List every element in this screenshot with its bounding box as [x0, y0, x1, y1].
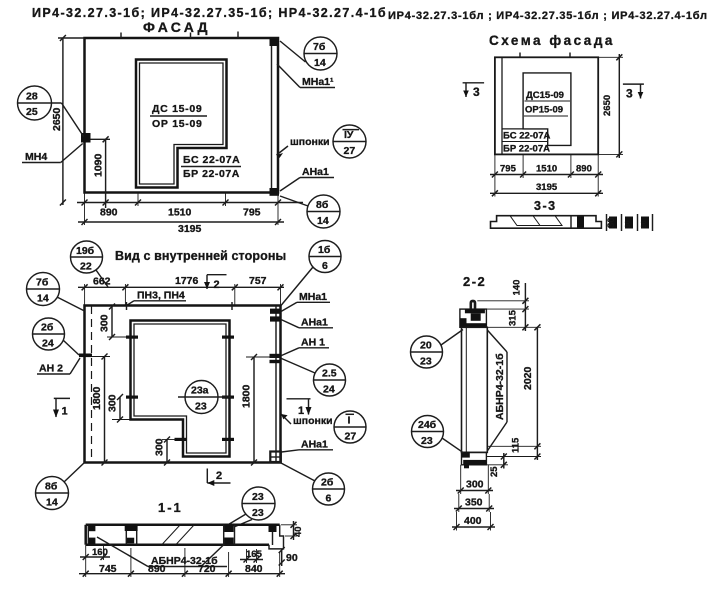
- svg-text:757: 757: [249, 275, 267, 287]
- svg-text:2б: 2б: [41, 322, 54, 334]
- svg-text:ОР15-09: ОР15-09: [525, 105, 563, 116]
- svg-text:20: 20: [420, 340, 432, 352]
- svg-text:22: 22: [80, 261, 92, 273]
- svg-text:24б: 24б: [418, 419, 437, 431]
- svg-text:1510: 1510: [536, 164, 557, 175]
- svg-text:ДС15-09: ДС15-09: [526, 90, 564, 101]
- svg-text:662: 662: [93, 276, 111, 288]
- svg-text:23а: 23а: [191, 385, 209, 397]
- svg-text:АНа1: АНа1: [301, 439, 328, 451]
- svg-text:3195: 3195: [178, 223, 202, 235]
- svg-text:АНа1: АНа1: [302, 166, 329, 178]
- svg-text:ОР 15-09: ОР 15-09: [152, 118, 203, 130]
- svg-text:25: 25: [26, 106, 38, 118]
- svg-text:3: 3: [473, 85, 480, 99]
- svg-text:19б: 19б: [76, 245, 95, 257]
- svg-text:14: 14: [46, 497, 58, 509]
- svg-text:БР 22-07А: БР 22-07А: [183, 168, 240, 180]
- svg-text:1800: 1800: [241, 384, 253, 408]
- svg-text:14: 14: [314, 57, 326, 69]
- svg-text:24: 24: [323, 384, 335, 396]
- svg-text:165: 165: [246, 549, 263, 560]
- svg-text:ДС 15-09: ДС 15-09: [152, 103, 202, 115]
- svg-text:23: 23: [421, 435, 433, 447]
- svg-text:720: 720: [198, 563, 216, 575]
- svg-text:БС 22-07А: БС 22-07А: [183, 154, 240, 166]
- svg-text:7б: 7б: [313, 41, 326, 53]
- svg-text:40: 40: [293, 526, 304, 537]
- svg-text:1090: 1090: [93, 153, 105, 177]
- svg-text:400: 400: [464, 515, 482, 527]
- svg-text:АНа1: АНа1: [301, 317, 328, 329]
- svg-text:890: 890: [576, 164, 592, 175]
- svg-text:14: 14: [37, 293, 49, 305]
- svg-text:шпонки: шпонки: [290, 136, 330, 148]
- svg-text:ИР4-32.27.3-1бл ; ИР4-32.27.35: ИР4-32.27.3-1бл ; ИР4-32.27.35-1бл ; ИР4…: [388, 10, 708, 22]
- svg-text:90: 90: [641, 220, 648, 228]
- svg-text:МНа1¹: МНа1¹: [302, 76, 334, 88]
- svg-text:30: 30: [606, 217, 617, 228]
- svg-text:3-3: 3-3: [534, 199, 557, 213]
- svg-text:890: 890: [100, 207, 118, 219]
- svg-text:27: 27: [344, 145, 356, 157]
- svg-text:3: 3: [626, 87, 633, 101]
- svg-text:1б: 1б: [318, 244, 331, 256]
- svg-text:Вид с внутренней стороны: Вид с внутренней стороны: [115, 249, 286, 263]
- svg-text:160: 160: [92, 547, 108, 558]
- svg-text:ІУ: ІУ: [344, 129, 354, 141]
- svg-text:АБНР4-32-1б: АБНР4-32-1б: [494, 353, 506, 420]
- svg-text:2б: 2б: [321, 477, 334, 489]
- svg-text:2.5: 2.5: [322, 368, 337, 380]
- svg-text:115: 115: [511, 437, 522, 453]
- svg-text:2-2: 2-2: [463, 274, 486, 289]
- svg-text:300: 300: [466, 479, 484, 491]
- svg-text:23: 23: [420, 356, 432, 368]
- svg-text:3195: 3195: [536, 182, 558, 193]
- svg-text:24: 24: [42, 338, 54, 350]
- svg-text:23: 23: [195, 401, 207, 413]
- svg-text:890: 890: [148, 563, 166, 575]
- svg-text:90: 90: [286, 552, 298, 564]
- svg-text:АН 2: АН 2: [39, 363, 63, 375]
- svg-text:795: 795: [500, 164, 517, 175]
- svg-text:2: 2: [214, 279, 220, 291]
- svg-text:350: 350: [465, 497, 483, 509]
- svg-text:шпонки: шпонки: [293, 415, 333, 427]
- svg-text:30: 30: [625, 220, 632, 228]
- svg-text:28: 28: [26, 91, 38, 103]
- svg-text:1776: 1776: [175, 275, 199, 287]
- svg-text:БР 22-07А: БР 22-07А: [503, 144, 550, 155]
- svg-text:МН4: МН4: [25, 151, 47, 163]
- svg-text:315: 315: [508, 309, 519, 326]
- svg-text:7б: 7б: [36, 277, 49, 289]
- svg-text:ИР4-32.27.3-1б; ИР4-32.27.35-: ИР4-32.27.3-1б; ИР4-32.27.35-1б; НР4-32.…: [32, 6, 387, 20]
- svg-text:14: 14: [317, 215, 329, 227]
- svg-text:27: 27: [345, 431, 357, 443]
- svg-text:2650: 2650: [602, 95, 613, 116]
- svg-text:23: 23: [252, 507, 264, 519]
- svg-text:300: 300: [99, 314, 111, 332]
- svg-text:6: 6: [322, 260, 328, 272]
- svg-text:300: 300: [107, 394, 119, 412]
- svg-text:25: 25: [489, 466, 500, 477]
- svg-text:6: 6: [326, 493, 332, 505]
- svg-text:140: 140: [512, 280, 523, 296]
- svg-text:8б: 8б: [316, 199, 329, 211]
- svg-text:І: І: [348, 415, 351, 427]
- svg-text:300: 300: [154, 438, 166, 456]
- svg-text:ФАСАД: ФАСАД: [143, 19, 211, 35]
- svg-text:БС 22-07А: БС 22-07А: [503, 131, 551, 142]
- svg-text:Схема фасада: Схема фасада: [489, 33, 615, 48]
- svg-text:2650: 2650: [51, 107, 63, 131]
- svg-text:840: 840: [245, 563, 263, 575]
- svg-text:ПН3, ПН4: ПН3, ПН4: [137, 290, 185, 302]
- svg-text:2020: 2020: [522, 366, 534, 390]
- svg-text:1: 1: [62, 406, 68, 418]
- svg-text:1510: 1510: [168, 207, 192, 219]
- svg-text:1-1: 1-1: [158, 500, 183, 515]
- svg-text:745: 745: [99, 563, 117, 575]
- svg-text:23: 23: [252, 491, 264, 503]
- svg-text:АН 1: АН 1: [301, 337, 325, 349]
- svg-text:8б: 8б: [45, 481, 58, 493]
- svg-text:795: 795: [243, 207, 261, 219]
- svg-text:1800: 1800: [91, 386, 103, 410]
- svg-text:МНа1: МНа1: [299, 291, 327, 303]
- svg-text:2: 2: [216, 470, 222, 482]
